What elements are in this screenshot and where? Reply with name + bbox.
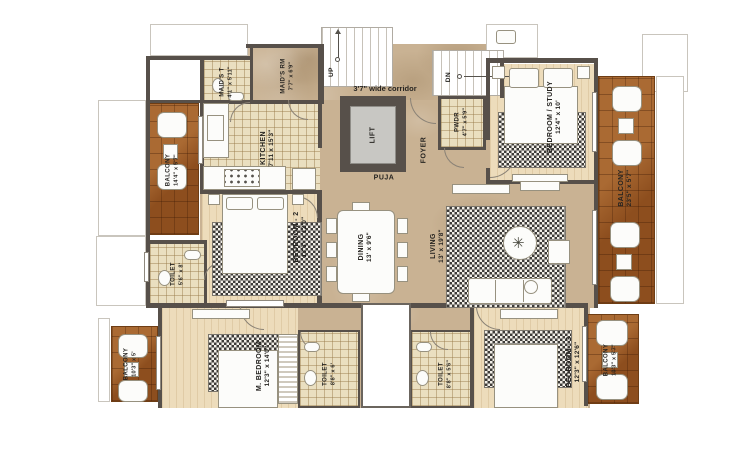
common-basin-icon	[496, 30, 516, 44]
pillow-icon	[509, 68, 539, 88]
room-label-toilet-bedroom2: TOILET 5'6" x 8'	[171, 262, 186, 286]
stair-up	[321, 27, 393, 87]
sofa	[468, 278, 552, 304]
room-label-balcony-bottom-right: BALCONY 10'3" x 5'7"	[604, 344, 619, 376]
stairs-up-label: UP	[328, 67, 336, 77]
wall	[318, 44, 324, 104]
dining-chair-icon	[397, 266, 408, 282]
room-label-living: LIVING 13' x 19'8"	[429, 229, 447, 263]
common-area-outline-top-left	[150, 24, 248, 56]
dining-chair-icon	[397, 242, 408, 258]
balcony-chair-icon	[596, 374, 628, 400]
balcony-chair-icon	[610, 222, 640, 248]
wall	[146, 56, 250, 60]
balcony-chair-icon	[612, 86, 642, 112]
kitchen-sink-icon	[207, 115, 224, 141]
tv-console	[452, 184, 510, 194]
floor-lamp-icon	[524, 280, 538, 294]
room-label-master-bedroom: M. BEDROOM 12'3" x 14'0"	[255, 341, 273, 391]
plant-icon: ✳	[512, 234, 525, 252]
balcony-chair-icon	[612, 140, 642, 166]
room-label-balcony-bottom-left: BALCONY 10'3" x 5'	[124, 348, 139, 380]
side-table	[548, 240, 570, 264]
pillow-icon	[226, 197, 253, 210]
room-label-toilet-bedroom3: TOILET 8'8" x 5'6"	[439, 360, 454, 388]
balcony-chair-icon	[157, 112, 187, 138]
exterior-outline-right	[656, 76, 684, 304]
wc-icon	[158, 270, 171, 286]
bedroom-study-bed	[504, 86, 578, 144]
common-area-outline-left	[96, 236, 146, 306]
nightstand-icon	[577, 66, 590, 79]
wall	[470, 306, 474, 408]
basin-icon	[184, 250, 201, 260]
balcony-chair-icon	[610, 276, 640, 302]
lift-label: LIFT	[368, 127, 377, 144]
basin-icon	[304, 342, 320, 352]
duct-shaft	[361, 303, 411, 408]
wardrobe	[278, 334, 298, 404]
room-label-toilet-master: TOILET 8'8" x 6'	[323, 362, 338, 386]
sofa-seam	[495, 280, 496, 302]
dresser	[192, 309, 250, 319]
wall	[318, 100, 322, 148]
room-label-maids-room: MAID'S RM 7'7" x 6'9"	[281, 58, 296, 93]
balcony-chair-icon	[596, 320, 628, 346]
exterior-outline-left	[98, 100, 146, 236]
stair-up-arrow-line	[338, 34, 339, 58]
room-label-balcony-right: BALCONY 23'5" x 5'7"	[617, 169, 635, 206]
room-label-dining: DINING 13' x 9'6"	[357, 232, 375, 262]
wall	[146, 100, 204, 103]
dining-chair-icon	[326, 266, 337, 282]
window	[144, 252, 149, 282]
nightstand-icon	[208, 194, 220, 205]
corridor-note: 3'7" wide corridor	[353, 84, 416, 94]
bench	[512, 174, 568, 182]
stair-up-arrowhead-icon	[335, 29, 341, 34]
stove-icon	[224, 169, 260, 187]
dresser	[500, 309, 558, 319]
bedroom3-bed	[494, 344, 558, 408]
window	[592, 92, 597, 152]
wc-icon	[416, 370, 429, 386]
wall	[250, 48, 253, 102]
room-label-maids-toilet: MAID'S T 4'1" x 5'11"	[220, 66, 235, 97]
bottom-crop	[0, 408, 730, 454]
pillow-icon	[257, 197, 284, 210]
wall	[246, 44, 324, 48]
room-label-bedroom-study: BEDROOM / STUDY 12'4" x 10'	[546, 81, 564, 153]
balcony-table-icon	[616, 254, 632, 270]
exterior-outline-left-lower	[98, 318, 110, 402]
wall	[146, 240, 206, 244]
puja-label: PUJA	[374, 173, 395, 182]
dining-chair-icon	[326, 242, 337, 258]
nightstand-icon	[492, 66, 505, 79]
basin-icon	[416, 342, 432, 352]
room-label-balcony-top-left: BALCONY 14'4" x 5'7"	[166, 154, 181, 186]
room-label-bedroom2: BEDROOM - 2 13'3" x 12'0"	[292, 211, 310, 262]
room-label-kitchen: KITCHEN 7'11 x 15'3"	[259, 129, 277, 166]
room-label-bedroom3: BEDROOM - 3 12'3" x 12'6"	[565, 336, 583, 387]
room-label-pwdr: PWDR 4'7" x 5'9"	[455, 108, 470, 136]
dining-chair-icon	[397, 218, 408, 234]
dining-chair-icon	[326, 218, 337, 234]
stairs-down-label: DN	[445, 72, 453, 82]
wall	[486, 62, 490, 140]
window	[592, 210, 597, 285]
wc-icon	[304, 370, 317, 386]
nightstand-icon	[292, 194, 304, 205]
balcony-chair-icon	[118, 380, 148, 402]
console-table	[520, 181, 560, 191]
foyer-label: FOYER	[419, 137, 428, 164]
balcony-table-icon	[618, 118, 634, 134]
floor-plan: ✳ BALCONY 14'4" x 5'7" MAID'S T 4'	[0, 0, 730, 454]
window	[156, 336, 161, 390]
stair-down-start-icon	[457, 74, 462, 79]
fridge-icon	[292, 168, 316, 190]
